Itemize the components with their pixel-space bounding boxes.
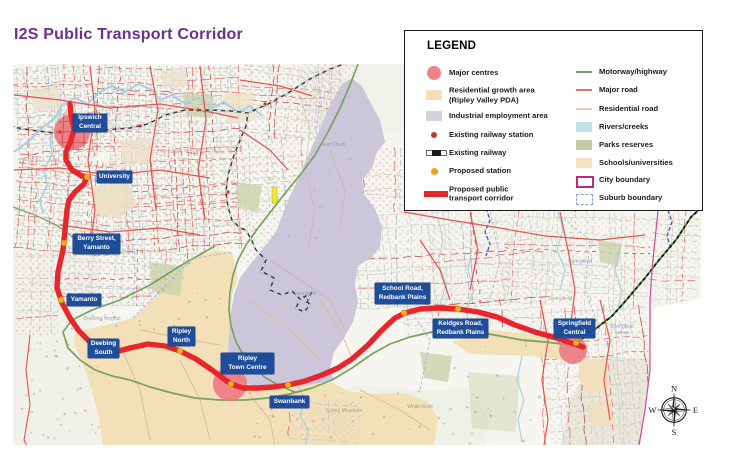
svg-text:Deebing Heights: Deebing Heights <box>84 316 121 322</box>
svg-text:N: N <box>671 384 677 394</box>
svg-text:E: E <box>693 405 698 415</box>
svg-text:W: W <box>648 405 656 415</box>
svg-text:White Rock: White Rock <box>407 404 433 410</box>
svg-text:Lakes: Lakes <box>615 330 629 336</box>
svg-text:Springfield: Springfield <box>568 259 592 265</box>
svg-text:Springfield: Springfield <box>548 296 572 302</box>
svg-text:Spring Mountain: Spring Mountain <box>326 408 363 414</box>
svg-text:Swanbank: Swanbank <box>293 291 317 297</box>
svg-text:S: S <box>672 427 677 437</box>
svg-text:New Chum: New Chum <box>321 142 346 148</box>
